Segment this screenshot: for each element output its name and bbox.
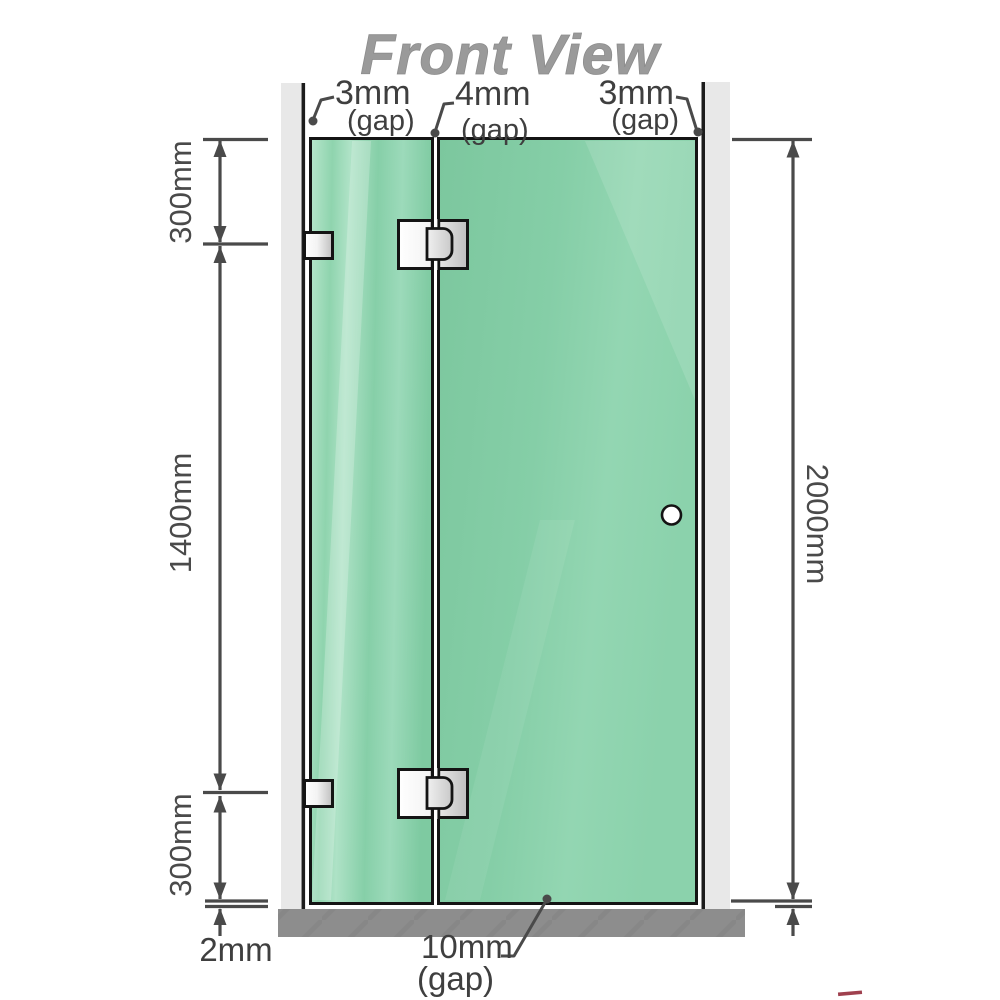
arrow-down — [214, 883, 227, 900]
front-view-diagram: Front View — [0, 0, 1000, 1000]
leader-dot — [431, 129, 440, 138]
hinge-pivot-block — [427, 778, 452, 809]
right-wall — [706, 82, 730, 909]
watermark-red-mark — [838, 990, 862, 996]
wall-bracket-bottom — [305, 781, 333, 807]
arrow-up — [214, 908, 227, 925]
leader-gap-top-right — [676, 97, 697, 131]
label-gap-top-middle-note: (gap) — [461, 114, 529, 146]
wall-bracket-top — [305, 233, 333, 259]
label-dim-1400: 1400mm — [163, 453, 198, 574]
arrow-up — [214, 796, 227, 813]
label-dim-300-bottom: 300mm — [163, 793, 198, 896]
hinge-pivot-block — [427, 229, 452, 260]
arrow-up — [214, 246, 227, 263]
label-floor-clearance: 2mm — [199, 931, 272, 968]
hinge-gap-line — [434, 260, 437, 270]
glass-hinge-top — [399, 219, 468, 270]
label-gap-bottom-note: (gap) — [417, 960, 494, 997]
label-gap-top-middle: 4mm — [455, 75, 531, 113]
glass-hinge-bottom — [399, 768, 468, 819]
leader-dot — [543, 895, 552, 904]
arrow-down — [787, 883, 800, 900]
arrow-up — [787, 141, 800, 158]
leader-gap-top-left — [313, 97, 334, 120]
arrow-down — [214, 226, 227, 243]
door-knob — [662, 506, 681, 525]
arrow-down — [214, 774, 227, 791]
diagram-canvas: Front View — [0, 0, 1000, 1000]
label-dim-2000: 2000mm — [800, 464, 835, 585]
leader-gap-top-middle — [435, 103, 454, 132]
leader-dot — [309, 117, 318, 126]
left-wall — [281, 83, 301, 909]
label-dim-300-top: 300mm — [163, 140, 198, 243]
arrow-up — [787, 908, 800, 925]
hinge-gap-line — [434, 809, 437, 819]
label-gap-top-left-note: (gap) — [347, 105, 415, 137]
leader-dot — [694, 128, 703, 137]
label-gap-top-right-note: (gap) — [611, 104, 679, 136]
arrow-up — [214, 140, 227, 157]
right-wall-edge-line — [702, 82, 706, 909]
